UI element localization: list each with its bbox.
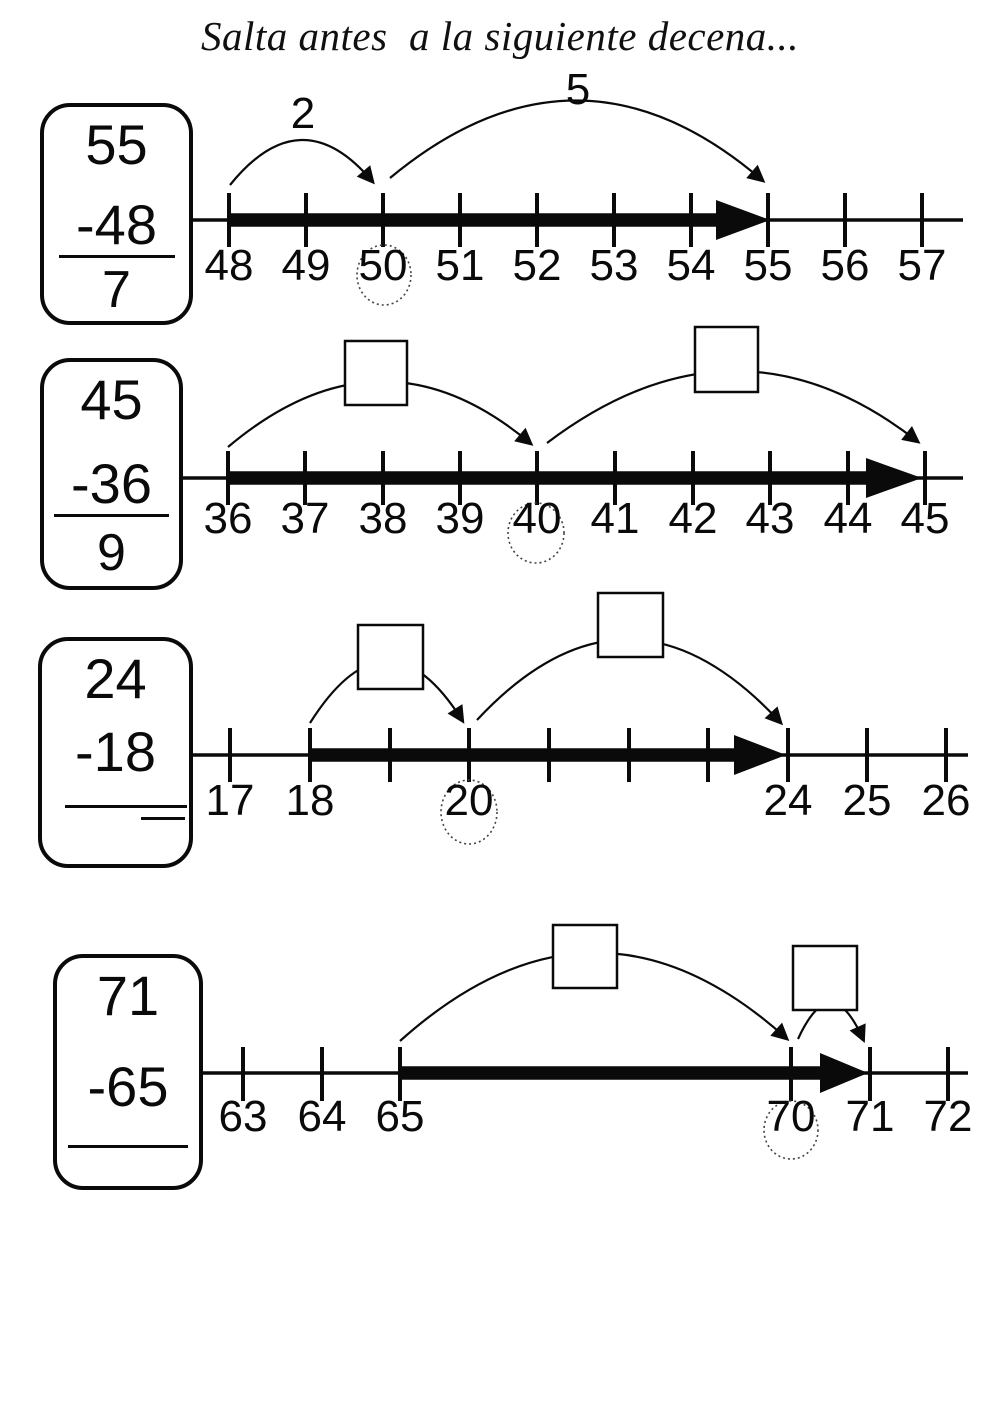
tick-label: 55	[744, 241, 793, 290]
tick-label: 24	[764, 776, 813, 825]
tick-label: 39	[436, 494, 485, 543]
tick-label: 20	[445, 776, 494, 825]
jump-box-2[interactable]	[695, 327, 758, 392]
subtrahend: -65	[88, 1059, 169, 1115]
answer-line[interactable]	[65, 805, 187, 808]
jump-box-2[interactable]	[793, 946, 857, 1010]
tick-label: 54	[667, 241, 716, 290]
jump-box-1[interactable]	[553, 925, 617, 988]
answer: 9	[97, 527, 126, 579]
answer-line	[54, 514, 169, 517]
answer-line-short[interactable]	[141, 817, 185, 820]
jump-label-2: 5	[566, 65, 590, 114]
jump-box-2[interactable]	[598, 593, 663, 657]
problem-card-3: 24 -18	[38, 637, 193, 868]
tick-label: 42	[669, 494, 718, 543]
tick-label: 64	[298, 1092, 347, 1141]
problem-card-4: 71 -65	[53, 954, 203, 1190]
tick-label: 71	[846, 1092, 895, 1141]
jump-arc-1	[230, 140, 372, 185]
tick-label: 65	[376, 1092, 425, 1141]
tick-label: 26	[922, 776, 971, 825]
number-line-1: 2 5 48 49 50 51 52 53 54 55 56 57	[192, 65, 963, 305]
tick-label: 52	[513, 241, 562, 290]
tick-label: 43	[746, 494, 795, 543]
range-arrow-head	[820, 1053, 868, 1093]
tick-label: 70	[767, 1092, 816, 1141]
jump-label-1: 2	[291, 89, 315, 138]
tick-label: 44	[824, 494, 873, 543]
minuend: 71	[97, 968, 159, 1024]
answer-line[interactable]	[68, 1145, 187, 1148]
minuend: 24	[84, 651, 146, 707]
number-line-4: 63 64 65 70 71 72	[203, 925, 972, 1159]
worksheet-page: Salta antes a la siguiente decena... 2 5…	[0, 0, 1000, 1413]
tick-label: 51	[436, 241, 485, 290]
range-arrow-head	[734, 735, 786, 775]
tick-label: 18	[286, 776, 335, 825]
tick-label: 17	[206, 776, 255, 825]
tick-label: 48	[205, 241, 254, 290]
tick-label: 25	[843, 776, 892, 825]
tick-label: 36	[204, 494, 253, 543]
tick-label: 63	[219, 1092, 268, 1141]
tick-label: 41	[591, 494, 640, 543]
range-arrow-head	[716, 200, 770, 240]
minuend: 55	[85, 117, 147, 173]
jump-box-1[interactable]	[345, 341, 407, 405]
tick-label: 49	[282, 241, 331, 290]
tick-label: 40	[513, 494, 562, 543]
minuend: 45	[80, 372, 142, 428]
tick-label: 45	[901, 494, 950, 543]
range-arrow-head	[866, 458, 922, 498]
jump-box-1[interactable]	[358, 625, 423, 689]
tick-label: 56	[821, 241, 870, 290]
tick-label: 57	[898, 241, 947, 290]
problem-card-1: 55 -48 7	[40, 103, 193, 325]
problem-card-2: 45 -36 9	[40, 358, 183, 590]
subtrahend: -36	[71, 456, 152, 512]
tick-label: 53	[590, 241, 639, 290]
answer-line	[59, 255, 175, 258]
tick-label: 72	[924, 1092, 973, 1141]
subtrahend: -18	[75, 724, 156, 780]
number-line-2: 36 37 38 39 40 41 42 43 44 45	[183, 327, 963, 563]
tick-label: 50	[359, 241, 408, 290]
tick-label: 37	[281, 494, 330, 543]
tick-label: 38	[359, 494, 408, 543]
number-line-3: 17 18 20 24 25 26	[193, 593, 970, 844]
answer: 7	[102, 264, 131, 316]
subtrahend: -48	[76, 197, 157, 253]
